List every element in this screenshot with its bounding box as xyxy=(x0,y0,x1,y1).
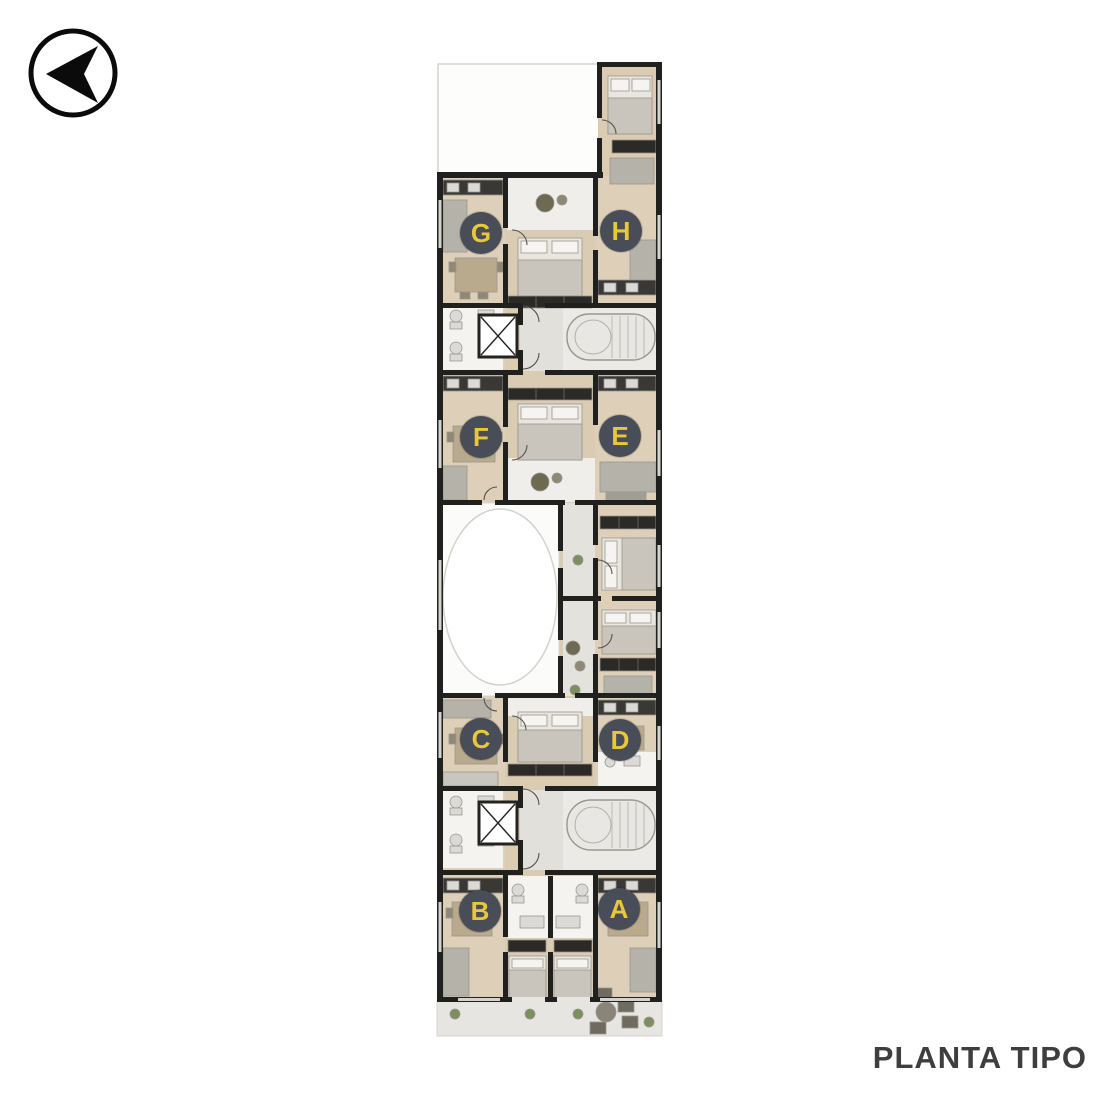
plant-icon xyxy=(644,1017,654,1027)
plant-icon xyxy=(525,1009,535,1019)
unit-label-h: H xyxy=(600,210,642,252)
wardrobe-icon xyxy=(554,940,592,952)
unit-letter: G xyxy=(471,220,491,246)
unit-letter: C xyxy=(472,726,491,752)
sofa-icon xyxy=(443,700,491,718)
unit-letter: F xyxy=(473,424,489,450)
table-icon xyxy=(536,194,554,212)
bed-icon xyxy=(518,404,582,460)
unit-letter: D xyxy=(611,727,630,753)
plant-icon xyxy=(573,555,583,565)
table-icon xyxy=(566,641,580,655)
sofa-icon xyxy=(630,948,656,992)
stairs-icon xyxy=(567,314,655,360)
unit-label-f: F xyxy=(460,416,502,458)
table-icon xyxy=(531,473,549,491)
wardrobe-icon xyxy=(600,658,656,671)
unit-label-e: E xyxy=(599,415,641,457)
sofa-icon xyxy=(443,948,469,996)
unit-label-b: B xyxy=(459,890,501,932)
wardrobe-icon xyxy=(508,764,592,776)
unit-letter: A xyxy=(610,896,629,922)
unit-letter: B xyxy=(471,898,490,924)
floor-plan xyxy=(0,0,1100,1100)
unit-label-a: A xyxy=(598,888,640,930)
wardrobe-icon xyxy=(508,940,546,952)
bed-icon xyxy=(554,956,591,998)
unit-label-g: G xyxy=(460,212,502,254)
unit-label-d: D xyxy=(599,719,641,761)
wardrobe-icon xyxy=(612,140,656,153)
sofa-icon xyxy=(443,466,467,500)
bed-icon xyxy=(602,538,656,590)
bed-icon xyxy=(518,238,582,296)
unit-label-c: C xyxy=(460,718,502,760)
desk-icon xyxy=(604,676,652,694)
stairs-icon xyxy=(567,800,655,850)
wardrobe-icon xyxy=(600,516,656,529)
plan-title: PLANTA TIPO xyxy=(873,1040,1087,1076)
sofa-icon xyxy=(610,158,654,184)
kitchen-counter-icon xyxy=(443,772,498,786)
wardrobe-icon xyxy=(508,388,592,400)
plant-icon xyxy=(450,1009,460,1019)
plant-icon xyxy=(573,1009,583,1019)
bed-icon xyxy=(608,76,652,134)
bed-icon xyxy=(518,712,582,762)
elevator-icon xyxy=(479,315,517,357)
sofa-icon xyxy=(600,462,656,492)
bed-icon xyxy=(602,610,656,654)
elevator-icon xyxy=(479,802,517,844)
unit-letter: E xyxy=(611,423,628,449)
bed-icon xyxy=(509,956,546,998)
unit-letter: H xyxy=(612,218,631,244)
page: G H F E C D B A PLANTA TIPO xyxy=(0,0,1100,1100)
